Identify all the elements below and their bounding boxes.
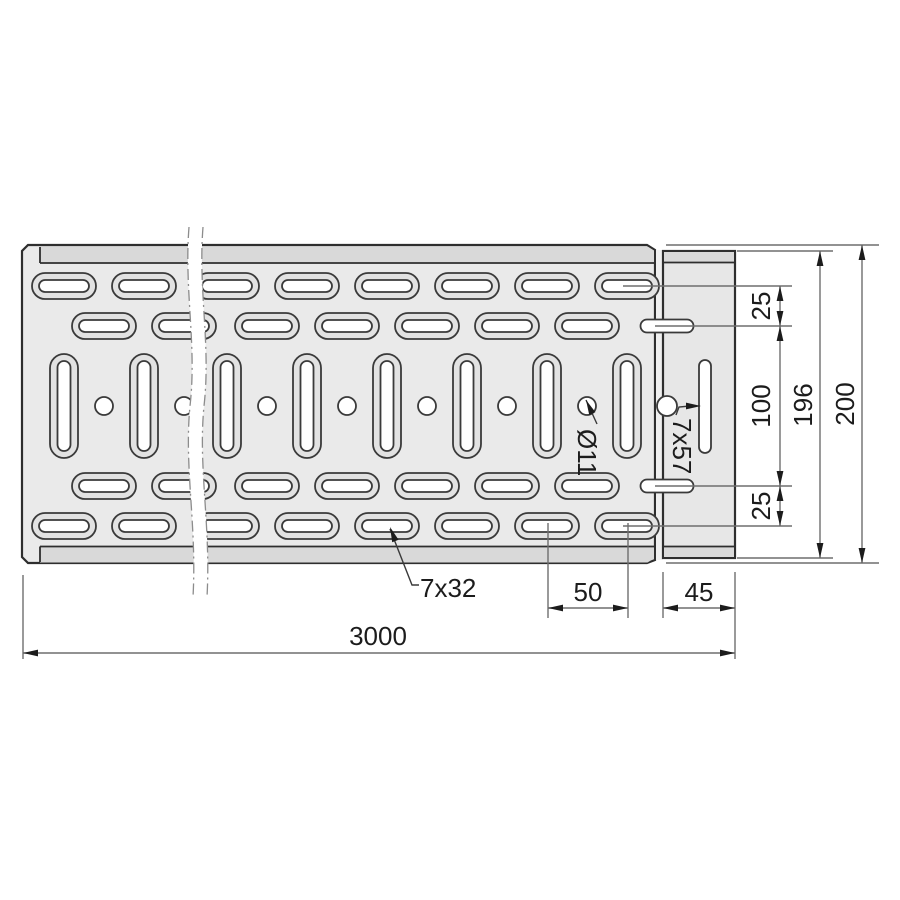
long-slot-hole bbox=[213, 354, 241, 458]
oblong-hole bbox=[315, 473, 379, 499]
oblong-hole bbox=[355, 513, 419, 539]
oblong-hole bbox=[555, 313, 619, 339]
oblong-hole bbox=[235, 473, 299, 499]
long-slot-hole bbox=[293, 354, 321, 458]
round-hole bbox=[498, 397, 516, 415]
coupler-top-band bbox=[664, 252, 734, 262]
label-text-dia11: Ø11 bbox=[572, 429, 602, 476]
oblong-hole bbox=[152, 473, 216, 499]
oblong-hole bbox=[275, 513, 339, 539]
oblong-hole bbox=[435, 513, 499, 539]
round-hole bbox=[258, 397, 276, 415]
label-text-7x32: 7x32 bbox=[420, 573, 476, 603]
oblong-hole bbox=[72, 473, 136, 499]
long-slot-hole bbox=[613, 354, 641, 458]
dim-text-3000: 3000 bbox=[349, 621, 407, 651]
oblong-hole bbox=[475, 313, 539, 339]
oblong-hole bbox=[235, 313, 299, 339]
label-text-7x57: 7x57 bbox=[667, 418, 697, 474]
dim-text-100: 100 bbox=[746, 384, 776, 427]
drawing-page: 25 100 25 196 200 50 45 3 bbox=[0, 0, 900, 900]
oblong-hole bbox=[435, 273, 499, 299]
long-slot-hole bbox=[373, 354, 401, 458]
round-hole bbox=[338, 397, 356, 415]
oblong-hole bbox=[275, 273, 339, 299]
round-hole bbox=[418, 397, 436, 415]
oblong-hole bbox=[395, 313, 459, 339]
oblong-hole bbox=[112, 273, 176, 299]
oblong-hole bbox=[515, 513, 579, 539]
oblong-hole bbox=[112, 513, 176, 539]
oblong-hole bbox=[152, 313, 216, 339]
bottom-flange-band bbox=[40, 547, 654, 563]
dim-text-196: 196 bbox=[788, 383, 818, 426]
oblong-hole bbox=[315, 313, 379, 339]
dim-text-200: 200 bbox=[830, 382, 860, 425]
oblong-hole bbox=[475, 473, 539, 499]
coupler-long-slot bbox=[699, 360, 711, 453]
top-flange-band bbox=[40, 247, 654, 263]
dim-text-50: 50 bbox=[574, 577, 603, 607]
long-slot-hole bbox=[453, 354, 481, 458]
round-hole bbox=[95, 397, 113, 415]
dim-text-25-top: 25 bbox=[746, 292, 776, 321]
oblong-hole bbox=[32, 273, 96, 299]
oblong-hole bbox=[555, 473, 619, 499]
long-slot-hole bbox=[533, 354, 561, 458]
coupler-bottom-band bbox=[664, 547, 734, 557]
oblong-hole bbox=[32, 513, 96, 539]
dim-text-45: 45 bbox=[685, 577, 714, 607]
oblong-hole bbox=[195, 273, 259, 299]
long-slot-hole bbox=[50, 354, 78, 458]
oblong-hole bbox=[72, 313, 136, 339]
oblong-hole bbox=[355, 273, 419, 299]
long-slot-hole bbox=[130, 354, 158, 458]
oblong-hole bbox=[515, 273, 579, 299]
oblong-hole bbox=[395, 473, 459, 499]
junction-round-hole bbox=[657, 396, 677, 416]
dim-text-25-bottom: 25 bbox=[746, 492, 776, 521]
cable-tray-technical-drawing: 25 100 25 196 200 50 45 3 bbox=[0, 0, 900, 900]
